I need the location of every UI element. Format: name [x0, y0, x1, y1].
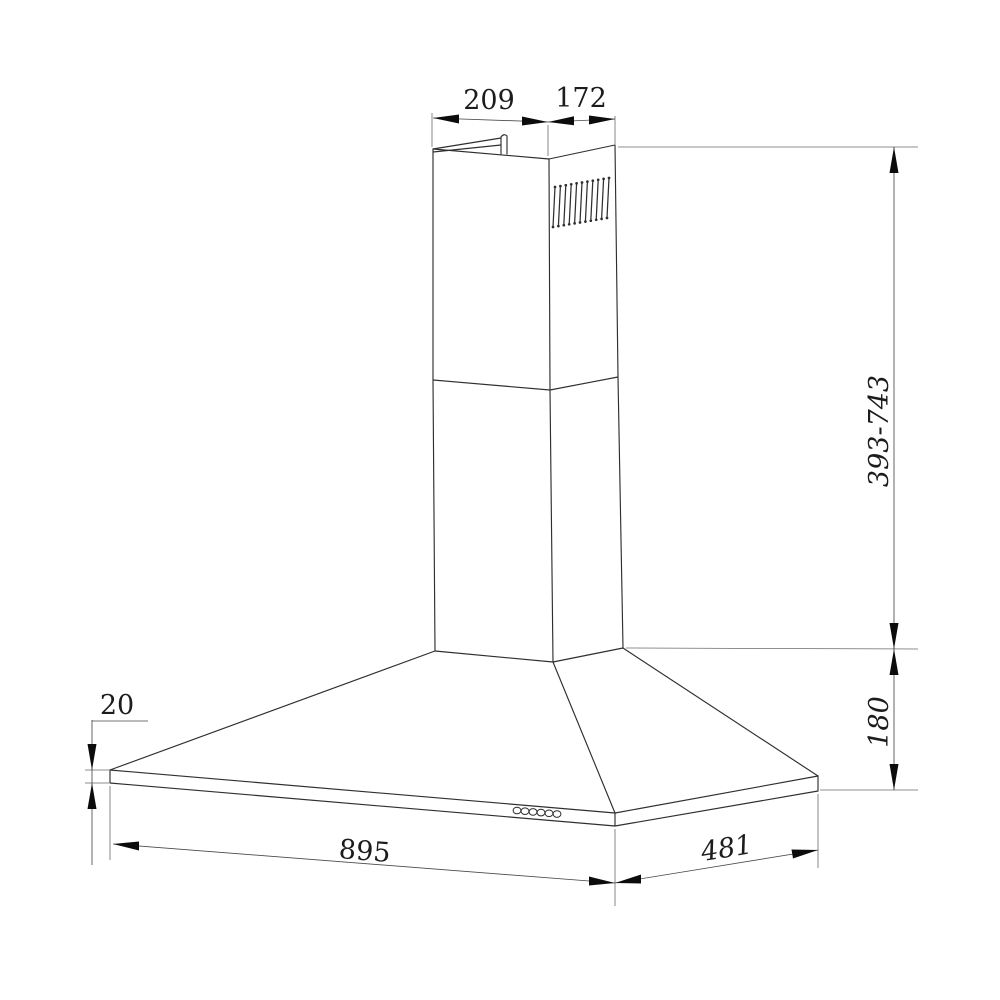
dim-label-chimney-height-range: 393-743 — [864, 375, 895, 487]
canopy-body — [110, 648, 818, 813]
dimension-lines — [92, 118, 894, 883]
dim-label-chimney-top-depth: 172 — [555, 83, 607, 114]
dimension-labels: 209 172 393-743 180 20 895 481 — [100, 83, 895, 869]
dim-label-chimney-top-width: 209 — [463, 85, 515, 116]
dim-label-hood-width: 895 — [338, 834, 392, 869]
cooker-hood-dimension-drawing: 209 172 393-743 180 20 895 481 — [0, 0, 1000, 1000]
dim-label-canopy-height: 180 — [864, 696, 895, 748]
hood-outline — [110, 135, 818, 826]
extension-lines — [85, 113, 918, 906]
rim-band — [110, 770, 818, 826]
mounting-tab — [433, 135, 507, 154]
control-buttons-icon — [513, 807, 561, 817]
dim-line-rim — [92, 720, 148, 865]
dimension-arrowheads — [88, 115, 899, 886]
dim-label-hood-depth: 481 — [698, 829, 755, 868]
telescopic-chimney — [433, 145, 623, 662]
vent-grille-icon — [553, 178, 609, 227]
dimension-drawing-page: 209 172 393-743 180 20 895 481 — [0, 0, 1000, 1000]
dim-label-rim-height: 20 — [100, 690, 134, 721]
chimney-section-joint — [433, 377, 618, 390]
